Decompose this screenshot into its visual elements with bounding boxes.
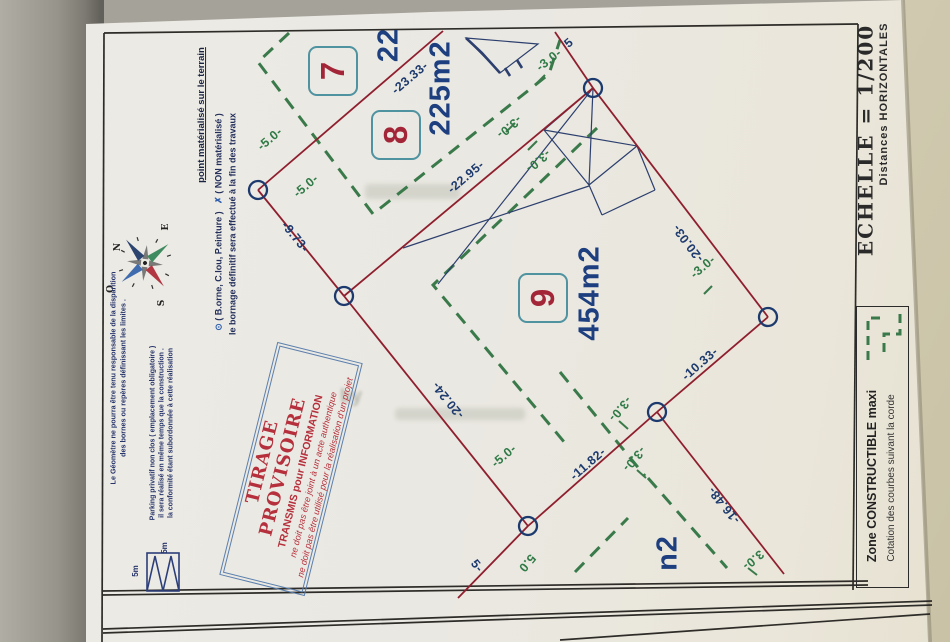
parking-note-line1: Parking privatif non clos ( emplacement … xyxy=(150,346,159,521)
zone-legend-title: Zone CONSTRUCTIBLE maxi xyxy=(865,390,881,562)
building-thick-edge xyxy=(466,38,522,76)
plan-drawing xyxy=(0,0,950,642)
non-materialise-x-icon: ✗ xyxy=(213,196,223,204)
parking-note-line3: la conformité étant subordonnée à cette … xyxy=(168,348,177,518)
parking-dim-5m: 5m xyxy=(131,565,141,577)
plot-area-label: n2 xyxy=(654,535,683,571)
plot-number-box: 8 xyxy=(371,110,421,160)
parking-dim-5m: 5m xyxy=(160,542,170,554)
borne-circle-icon: ⊙ xyxy=(213,323,223,331)
plot-number-box: 9 xyxy=(518,273,568,323)
plot-number: 7 xyxy=(314,62,352,80)
parking-note-line2: il sera réalisé en même temps que la con… xyxy=(159,348,168,518)
zone-legend-subtitle: Cotation des courbes suivant la corde xyxy=(886,394,899,561)
marker-legend-title: point matérialisé sur le terrain xyxy=(196,47,208,183)
plot-area-label: 225m2 xyxy=(427,40,456,135)
marker-legend-symbols: ⊙ ( B.orne, C.lou, P.einture ) ✗ ( NON m… xyxy=(213,113,224,331)
parking-symbol xyxy=(147,553,179,591)
marker2-text: ( NON matérialisé ) xyxy=(213,113,223,194)
plot-number: 9 xyxy=(524,289,562,307)
distances-label: Distances HORIZONTALES xyxy=(878,23,892,186)
plot-number-box: 7 xyxy=(308,46,358,96)
marker-legend-note: le bornage définitif sera effectué à la … xyxy=(227,113,238,335)
compass-south-label: S xyxy=(157,300,167,307)
surveyor-disclaimer-line2: des bornes ou repères définissant les li… xyxy=(119,299,128,457)
plot-area-label: 22 xyxy=(375,28,404,62)
plot-number: 8 xyxy=(377,126,415,144)
plot-area-label: 454m2 xyxy=(576,245,605,340)
compass-north-label: N xyxy=(113,243,123,251)
marker1-text: ( B.orne, C.lou, P.einture ) xyxy=(213,211,223,320)
zone-legend-box xyxy=(856,306,909,588)
surveyor-disclaimer-line1: Le Géomètre ne pourra être tenu responsa… xyxy=(109,272,118,485)
compass-east-label: E xyxy=(161,224,171,231)
scale-label: ECHELLE = 1/200 xyxy=(854,24,879,256)
